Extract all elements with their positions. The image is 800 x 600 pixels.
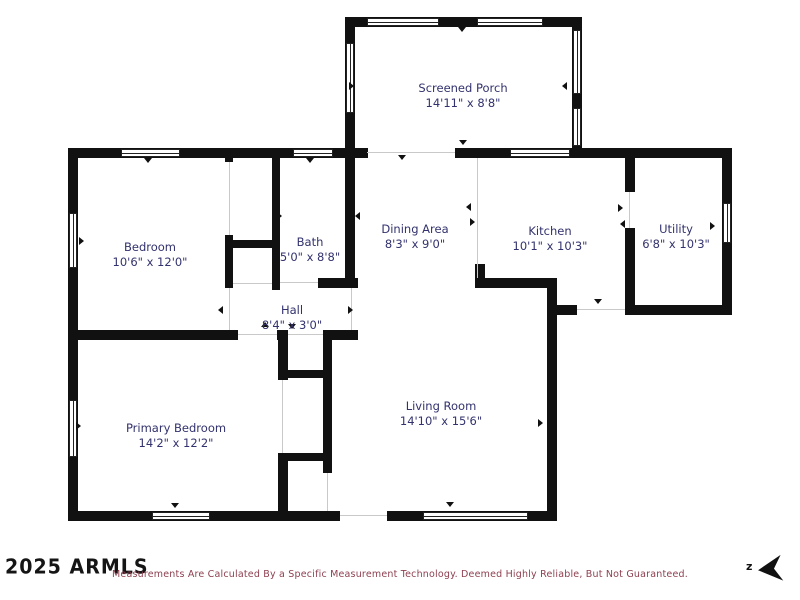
room-label-utility: Utility 6'8" x 10'3" [642, 222, 710, 252]
window [510, 149, 570, 157]
door-opening [367, 152, 455, 153]
room-name: Bath [280, 235, 340, 250]
north-arrow: z [744, 549, 790, 589]
wall [318, 278, 358, 288]
door-opening [282, 380, 283, 453]
measure-tick [349, 82, 354, 90]
room-dims: 10'6" x 12'0" [113, 255, 188, 270]
room-dims: 6'8" x 10'3" [642, 237, 710, 252]
window [573, 30, 581, 94]
wall [323, 330, 332, 473]
measure-tick [171, 503, 179, 508]
wall [625, 305, 732, 315]
window [573, 108, 581, 146]
wall [278, 370, 332, 378]
room-label-primary-bedroom: Primary Bedroom 14'2" x 12'2" [126, 421, 226, 451]
door-opening [288, 334, 323, 335]
wall [225, 148, 233, 162]
door-opening [229, 162, 230, 235]
room-label-bedroom: Bedroom 10'6" x 12'0" [113, 240, 188, 270]
room-label-hall: Hall 8'4" x 3'0" [262, 303, 322, 333]
room-dims: 10'1" x 10'3" [513, 239, 588, 254]
wall [557, 305, 577, 315]
door-opening [280, 282, 318, 283]
wall [225, 240, 272, 248]
wall [455, 148, 732, 158]
door-opening [229, 288, 230, 330]
window [346, 43, 354, 113]
room-label-living-room: Living Room 14'10" x 15'6" [400, 399, 482, 429]
room-divider-line [477, 158, 478, 278]
room-name: Hall [262, 303, 322, 318]
measure-tick [76, 422, 81, 430]
wall [345, 148, 368, 158]
room-name: Primary Bedroom [126, 421, 226, 436]
window [423, 512, 528, 520]
room-name: Dining Area [381, 222, 448, 237]
room-dims: 8'3" x 9'0" [381, 237, 448, 252]
room-name: Kitchen [513, 224, 588, 239]
measure-tick [618, 204, 623, 212]
window [367, 18, 439, 26]
room-name: Screened Porch [418, 81, 507, 96]
measure-tick [562, 82, 567, 90]
wall [278, 453, 332, 461]
door-opening [629, 192, 630, 228]
measure-tick [144, 158, 152, 163]
room-label-kitchen: Kitchen 10'1" x 10'3" [513, 224, 588, 254]
measure-tick [355, 212, 360, 220]
room-label-dining-area: Dining Area 8'3" x 9'0" [381, 222, 448, 252]
door-opening [233, 283, 272, 284]
measure-tick [277, 212, 282, 220]
measure-tick [218, 306, 223, 314]
measurement-disclaimer: Measurements Are Calculated By a Specifi… [0, 569, 800, 580]
door-opening [577, 309, 625, 310]
measure-tick [594, 299, 602, 304]
measure-tick [398, 155, 406, 160]
measure-tick [710, 222, 715, 230]
room-dims: 5'0" x 8'8" [280, 250, 340, 265]
measure-tick [459, 140, 467, 145]
wall [625, 228, 635, 315]
window [723, 203, 731, 243]
room-dims: 14'10" x 15'6" [400, 414, 482, 429]
wall [475, 278, 557, 288]
measure-tick [458, 27, 466, 32]
north-arrow-icon [756, 554, 785, 585]
measure-tick [470, 218, 475, 226]
wall [625, 148, 635, 192]
door-opening [327, 473, 328, 511]
window [69, 213, 77, 268]
measure-tick [446, 502, 454, 507]
room-name: Living Room [400, 399, 482, 414]
measure-tick [306, 158, 314, 163]
measure-tick [79, 237, 84, 245]
window [152, 512, 210, 520]
window [477, 18, 543, 26]
measure-tick [348, 306, 353, 314]
room-dims: 8'4" x 3'0" [262, 318, 322, 333]
room-name: Bedroom [113, 240, 188, 255]
room-dims: 14'2" x 12'2" [126, 436, 226, 451]
measure-tick [620, 220, 625, 228]
room-dims: 14'11" x 8'8" [418, 96, 507, 111]
floor-plan: Screened Porch 14'11" x 8'8" Bedroom 10'… [0, 0, 800, 600]
room-label-bath: Bath 5'0" x 8'8" [280, 235, 340, 265]
room-name: Utility [642, 222, 710, 237]
room-label-screened-porch: Screened Porch 14'11" x 8'8" [418, 81, 507, 111]
north-arrow-label: z [746, 560, 752, 573]
wall [68, 330, 238, 340]
wall [278, 453, 288, 521]
wall [547, 278, 557, 521]
door-opening [238, 334, 277, 335]
measure-tick [538, 419, 543, 427]
door-opening [340, 515, 387, 516]
window [293, 149, 333, 157]
measure-tick [466, 203, 471, 211]
window [121, 149, 180, 157]
